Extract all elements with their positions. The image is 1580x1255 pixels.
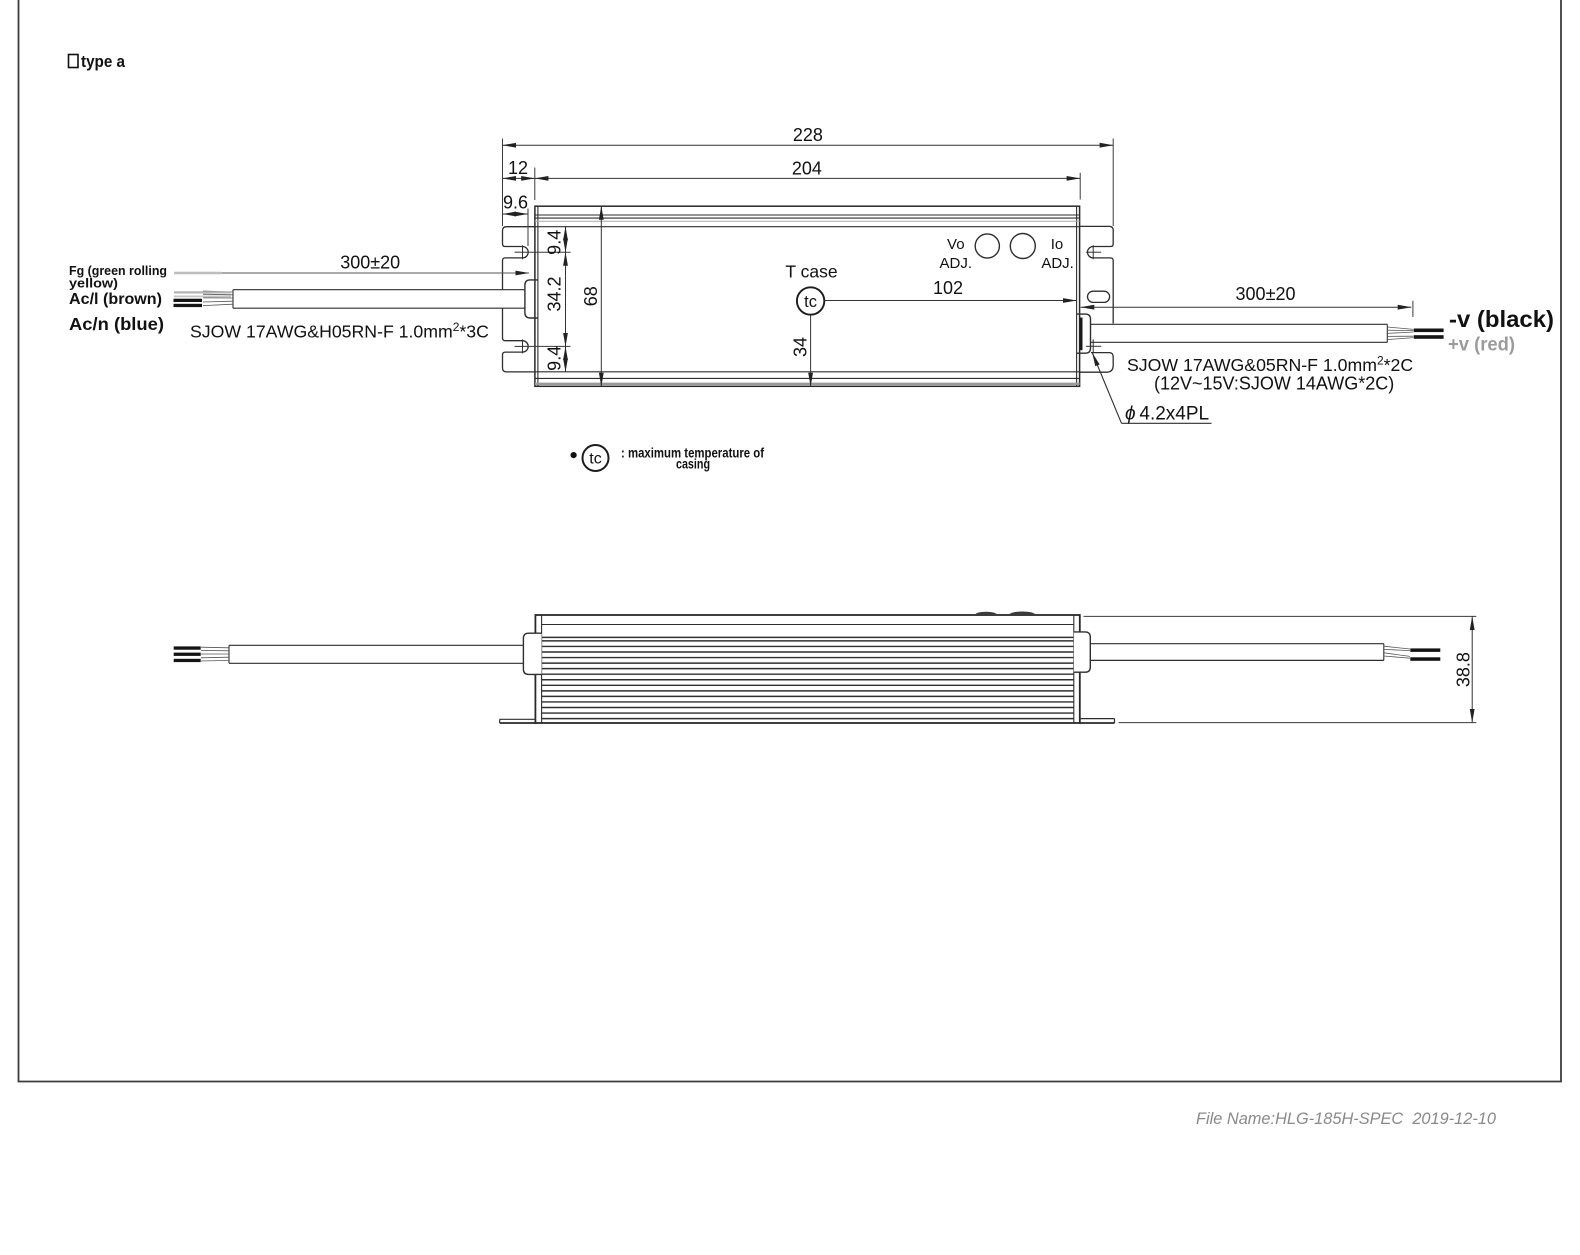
svg-text:+v (red): +v (red) bbox=[1448, 335, 1515, 356]
svg-text:9.6: 9.6 bbox=[503, 193, 528, 213]
svg-text:SJOW 17AWG&H05RN-F 1.0mm2*3C: SJOW 17AWG&H05RN-F 1.0mm2*3C bbox=[190, 320, 489, 342]
svg-text:38.8: 38.8 bbox=[1453, 652, 1473, 687]
svg-text:ϕ 4.2x4PL: ϕ 4.2x4PL bbox=[1125, 404, 1209, 425]
svg-text:File Name:HLG-185H-SPEC 2019-: File Name:HLG-185H-SPEC 2019-12-10 bbox=[1196, 1110, 1497, 1128]
svg-text:tc: tc bbox=[589, 451, 601, 468]
svg-text:tc: tc bbox=[804, 293, 817, 311]
svg-text:yellow): yellow) bbox=[69, 276, 118, 291]
svg-text:SJOW 17AWG&05RN-F 1.0mm2*2C: SJOW 17AWG&05RN-F 1.0mm2*2C bbox=[1127, 354, 1413, 376]
svg-text:ADJ.: ADJ. bbox=[940, 255, 973, 272]
svg-text:68: 68 bbox=[581, 286, 601, 306]
svg-text:Ac/n (blue): Ac/n (blue) bbox=[69, 314, 164, 334]
svg-text:9.4: 9.4 bbox=[544, 346, 564, 371]
svg-text:Vo: Vo bbox=[947, 236, 965, 253]
svg-text:9.4: 9.4 bbox=[544, 230, 564, 255]
svg-text:34.2: 34.2 bbox=[544, 276, 564, 311]
svg-text:12: 12 bbox=[508, 158, 528, 178]
svg-text:T case: T case bbox=[785, 261, 837, 281]
svg-text:Ac/l (brown): Ac/l (brown) bbox=[69, 291, 162, 308]
svg-text:34: 34 bbox=[791, 337, 811, 357]
svg-text:300±20: 300±20 bbox=[1236, 284, 1296, 304]
svg-text:300±20: 300±20 bbox=[340, 252, 400, 272]
svg-text:102: 102 bbox=[933, 278, 963, 298]
svg-text:-v (black): -v (black) bbox=[1449, 306, 1554, 332]
svg-text:type a: type a bbox=[81, 53, 126, 71]
svg-text:ADJ.: ADJ. bbox=[1041, 255, 1074, 272]
svg-text:Io: Io bbox=[1051, 236, 1064, 253]
svg-text:228: 228 bbox=[793, 125, 823, 145]
svg-text:204: 204 bbox=[792, 159, 822, 179]
svg-text:casing: casing bbox=[676, 456, 710, 472]
svg-text:(12V~15V:SJOW 14AWG*2C): (12V~15V:SJOW 14AWG*2C) bbox=[1154, 374, 1394, 394]
